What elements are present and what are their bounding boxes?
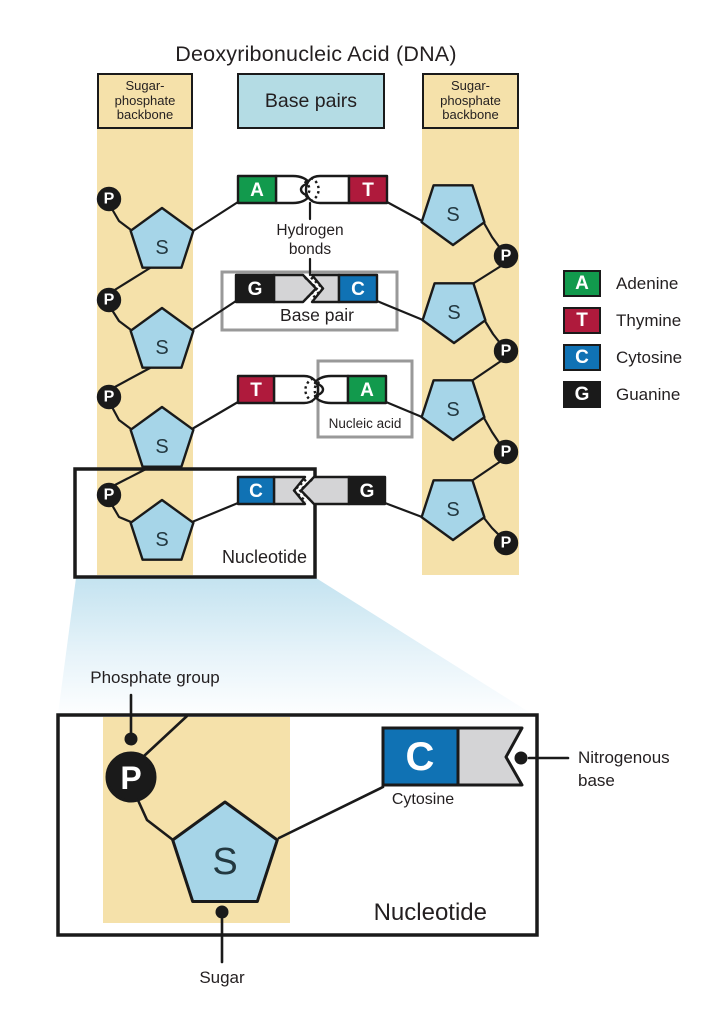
svg-text:S: S <box>155 529 168 551</box>
base-connector <box>276 176 309 203</box>
svg-text:S: S <box>155 237 168 259</box>
svg-text:P: P <box>104 191 115 208</box>
diagram-canvas: P P P P S S S S P P P P S S S S <box>0 0 717 1024</box>
nucleotide-detail: P S C <box>58 695 568 962</box>
phosphate-letter-large: P <box>120 760 141 796</box>
svg-text:P: P <box>104 487 115 504</box>
svg-text:S: S <box>446 204 459 226</box>
svg-text:S: S <box>446 499 459 521</box>
svg-text:C: C <box>351 279 365 300</box>
phosphate-pointer-dot <box>125 733 138 746</box>
svg-text:P: P <box>501 444 512 461</box>
dna-diagram: P P P P S S S S P P P P S S S S <box>0 0 717 1024</box>
base-connector <box>301 477 349 504</box>
svg-text:S: S <box>155 337 168 359</box>
svg-text:C: C <box>249 481 263 502</box>
base-connector <box>315 376 348 403</box>
page-title: Deoxyribonucleic Acid (DNA) <box>96 42 536 67</box>
legend-name: Cytosine <box>616 344 682 371</box>
legend-item-guanine: G Guanine <box>563 381 703 408</box>
header-text-line: Sugar- <box>125 79 164 94</box>
nitrogenous-base-label: Nitrogenous base <box>578 746 698 792</box>
nucleotide-label: Nucleotide <box>185 547 307 568</box>
svg-text:P: P <box>501 343 512 360</box>
svg-text:A: A <box>360 380 374 401</box>
header-text-line: phosphate <box>440 94 501 109</box>
header-text-line: backbone <box>442 108 498 123</box>
base-connector <box>306 176 349 203</box>
base-pair-label: Base pair <box>242 305 392 326</box>
header-text-line: backbone <box>117 108 173 123</box>
legend-item-thymine: T Thymine <box>563 307 703 334</box>
legend-swatch: G <box>563 381 601 408</box>
svg-text:G: G <box>248 279 263 300</box>
legend-name: Adenine <box>616 270 678 297</box>
svg-text:T: T <box>362 180 374 201</box>
nucleotide-large-label: Nucleotide <box>327 899 487 927</box>
cytosine-letter-large: C <box>406 735 435 779</box>
header-text: Base pairs <box>265 90 357 113</box>
hydrogen-bonds-label: Hydrogen bonds <box>256 221 364 259</box>
sugar-label: Sugar <box>172 968 272 988</box>
svg-text:P: P <box>104 389 115 406</box>
legend-swatch: C <box>563 344 601 371</box>
svg-text:P: P <box>501 535 512 552</box>
legend-name: Guanine <box>616 381 680 408</box>
legend-item-adenine: A Adenine <box>563 270 703 297</box>
nucleic-acid-label: Nucleic acid <box>318 416 412 431</box>
svg-text:T: T <box>250 380 262 401</box>
svg-text:S: S <box>155 436 168 458</box>
svg-text:A: A <box>250 180 264 201</box>
sugar-pointer-dot <box>216 906 229 919</box>
nitrogenous-pointer-dot <box>515 752 528 765</box>
sugar-letter-large: S <box>212 841 237 883</box>
svg-text:G: G <box>360 481 375 502</box>
phosphate-group-label: Phosphate group <box>55 668 255 688</box>
legend-swatch: T <box>563 307 601 334</box>
header-left-backbone: Sugar- phosphate backbone <box>97 73 193 129</box>
legend-swatch: A <box>563 270 601 297</box>
zoom-projection <box>58 578 532 714</box>
svg-text:S: S <box>447 302 460 324</box>
header-right-backbone: Sugar- phosphate backbone <box>422 73 519 129</box>
legend-item-cytosine: C Cytosine <box>563 344 703 371</box>
legend-name: Thymine <box>616 307 681 334</box>
header-text-line: phosphate <box>115 94 176 109</box>
base-connector <box>274 275 316 302</box>
header-text-line: Sugar- <box>451 79 490 94</box>
cytosine-label: Cytosine <box>363 791 483 809</box>
svg-text:P: P <box>501 248 512 265</box>
header-base-pairs: Base pairs <box>237 73 385 129</box>
svg-text:P: P <box>104 292 115 309</box>
svg-text:S: S <box>446 399 459 421</box>
